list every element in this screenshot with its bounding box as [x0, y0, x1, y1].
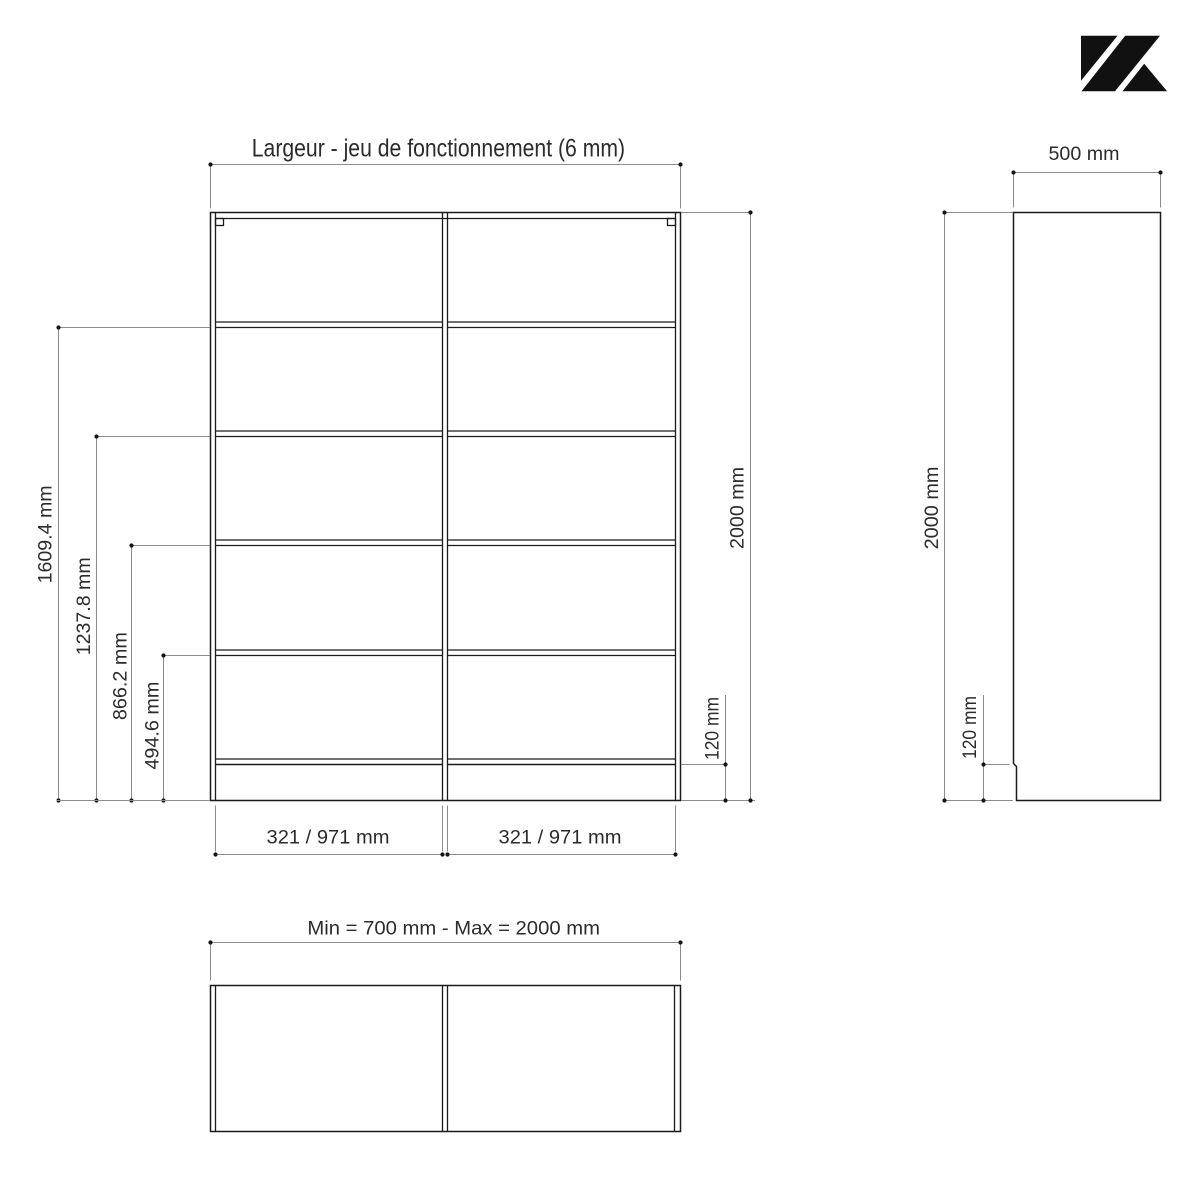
- svg-text:120 mm: 120 mm: [960, 696, 981, 759]
- svg-text:120 mm: 120 mm: [703, 697, 724, 760]
- svg-text:500 mm: 500 mm: [1049, 144, 1120, 165]
- svg-text:866.2 mm: 866.2 mm: [111, 632, 132, 720]
- svg-text:2000 mm: 2000 mm: [727, 467, 748, 549]
- svg-text:321 / 971 mm: 321 / 971 mm: [499, 827, 622, 848]
- svg-text:Largeur - jeu de fonctionnemen: Largeur - jeu de fonctionnement (6 mm): [252, 135, 625, 163]
- svg-text:Min = 700 mm - Max = 2000 mm: Min = 700 mm - Max = 2000 mm: [307, 917, 600, 939]
- svg-text:2000 mm: 2000 mm: [922, 467, 943, 550]
- svg-text:1609.4 mm: 1609.4 mm: [36, 485, 57, 583]
- svg-text:321 / 971 mm: 321 / 971 mm: [267, 827, 390, 848]
- svg-text:494.6 mm: 494.6 mm: [143, 682, 164, 770]
- svg-text:1237.8 mm: 1237.8 mm: [74, 557, 95, 655]
